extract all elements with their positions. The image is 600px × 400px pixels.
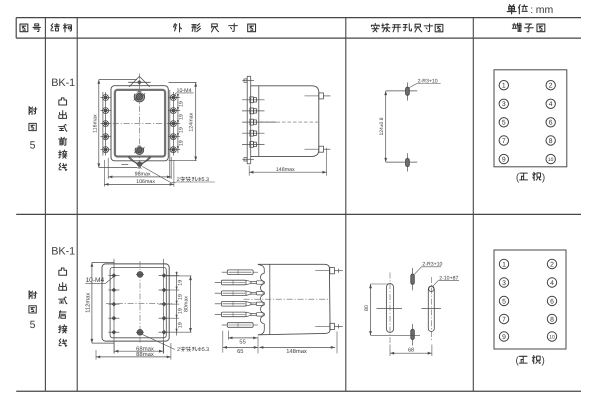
svg-text:1: 1 [502,261,506,268]
svg-text:7: 7 [502,138,506,145]
svg-text:19: 19 [179,101,185,107]
svg-text:19: 19 [179,140,185,146]
svg-text:1: 1 [502,83,506,90]
svg-text:19: 19 [177,294,183,300]
svg-text:8: 8 [549,138,553,145]
svg-text:148max: 148max [276,167,295,173]
svg-text:6: 6 [549,120,553,127]
svg-text:19: 19 [177,308,183,314]
svg-text:4: 4 [550,280,554,287]
svg-text:2: 2 [550,261,554,268]
svg-text:5: 5 [30,319,36,331]
svg-text:19: 19 [177,322,183,328]
svg-text:10: 10 [548,157,554,163]
svg-text:124max: 124max [188,112,194,131]
svg-text:124±0.8: 124±0.8 [379,117,385,135]
svg-text:148max: 148max [286,348,307,355]
svg-text:2: 2 [177,177,180,183]
svg-text:5: 5 [502,120,506,127]
svg-text:68: 68 [408,347,414,353]
svg-text:19: 19 [179,114,185,120]
svg-text:98max: 98max [135,172,151,178]
svg-text:19: 19 [177,280,183,286]
svg-text::: : [530,4,533,16]
svg-text:3: 3 [502,280,506,287]
svg-text:3: 3 [502,101,506,108]
svg-text:9: 9 [502,157,506,164]
svg-text:116max: 116max [92,114,98,133]
svg-text:10: 10 [549,335,555,341]
svg-text:BK-1: BK-1 [51,245,75,257]
svg-text:6: 6 [550,298,554,305]
svg-text:9: 9 [502,334,506,341]
svg-text:Φ5.3: Φ5.3 [197,347,209,353]
svg-text:2-R3+10: 2-R3+10 [418,78,438,84]
svg-text:2: 2 [177,347,180,353]
svg-text:65: 65 [237,349,243,355]
svg-text:4: 4 [549,101,553,108]
svg-text:2: 2 [549,83,553,90]
svg-text:8: 8 [550,316,554,323]
svg-text:): ) [542,356,545,367]
svg-text:): ) [542,172,545,183]
svg-text:80: 80 [364,305,370,311]
svg-text:(: ( [516,172,520,183]
svg-text:5: 5 [30,140,36,152]
svg-text:5: 5 [502,298,506,305]
svg-text:19: 19 [179,127,185,133]
svg-text:mm: mm [536,4,554,16]
svg-text:106max: 106max [136,179,155,185]
svg-text:80max: 80max [184,296,190,312]
svg-text:7: 7 [502,316,506,323]
svg-text:55: 55 [239,339,245,345]
svg-text:(: ( [516,356,520,367]
svg-text:BK-1: BK-1 [51,77,75,89]
svg-text:112max: 112max [84,293,91,313]
svg-text:Φ5.3: Φ5.3 [197,177,209,183]
svg-text:88max: 88max [136,351,154,358]
